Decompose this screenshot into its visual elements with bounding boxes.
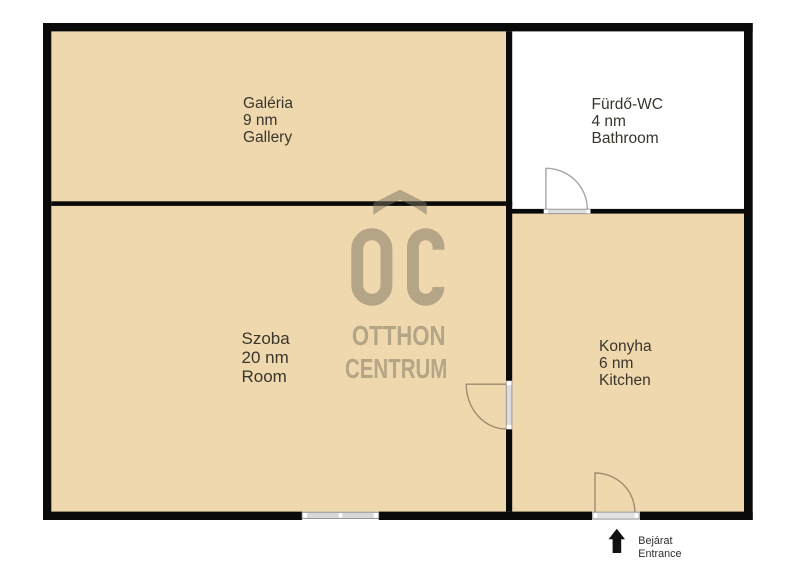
svg-text:4 nm: 4 nm	[592, 113, 626, 130]
svg-text:Bathroom: Bathroom	[592, 130, 659, 147]
svg-text:CENTRUM: CENTRUM	[345, 353, 447, 384]
svg-text:Konyha: Konyha	[599, 338, 652, 355]
svg-text:OTTHON: OTTHON	[352, 320, 446, 351]
svg-text:Fürdő-WC: Fürdő-WC	[592, 96, 663, 113]
svg-text:Room: Room	[242, 367, 287, 386]
svg-text:Bejárat: Bejárat	[638, 535, 672, 547]
svg-text:20 nm: 20 nm	[242, 348, 289, 367]
svg-text:Kitchen: Kitchen	[599, 372, 651, 389]
svg-text:6 nm: 6 nm	[599, 355, 633, 372]
svg-text:9 nm: 9 nm	[243, 112, 277, 129]
svg-text:Galéria: Galéria	[243, 95, 293, 112]
svg-text:Entrance: Entrance	[638, 548, 681, 560]
svg-text:Gallery: Gallery	[243, 129, 292, 146]
svg-text:Szoba: Szoba	[242, 329, 291, 348]
